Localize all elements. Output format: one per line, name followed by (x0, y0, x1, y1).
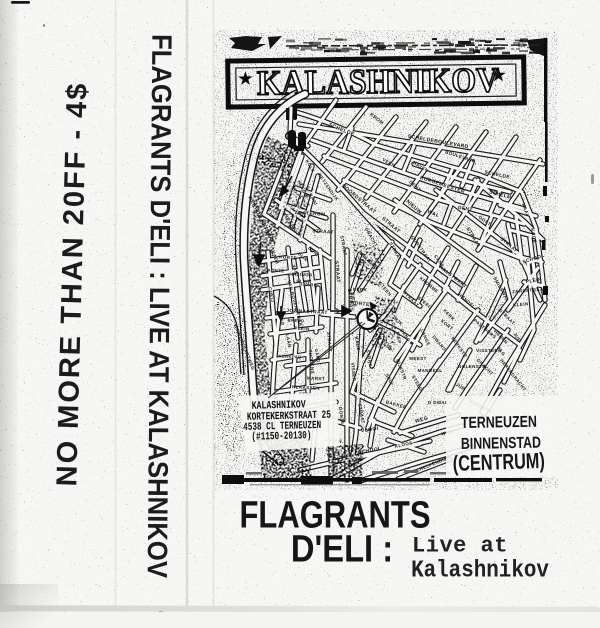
svg-text:DWARS: DWARS (299, 282, 317, 288)
svg-text:★: ★ (490, 65, 507, 86)
svg-text:KORTE: KORTE (268, 268, 285, 274)
svg-text:TERNEUZEN: TERNEUZEN (461, 414, 537, 432)
svg-text:BREED: BREED (288, 318, 305, 324)
svg-text:(CENTRUM): (CENTRUM) (452, 448, 545, 476)
svg-text:HAZINGA: HAZINGA (289, 272, 313, 278)
svg-text:MARKT: MARKT (307, 376, 325, 382)
svg-text:PLEIN: PLEIN (294, 326, 310, 332)
svg-text:★: ★ (237, 69, 254, 90)
svg-text:(#1150-20130): (#1150-20130) (251, 430, 311, 444)
svg-text:MANDEEL: MANDEEL (417, 368, 442, 373)
svg-text:MEEST: MEEST (409, 356, 427, 361)
